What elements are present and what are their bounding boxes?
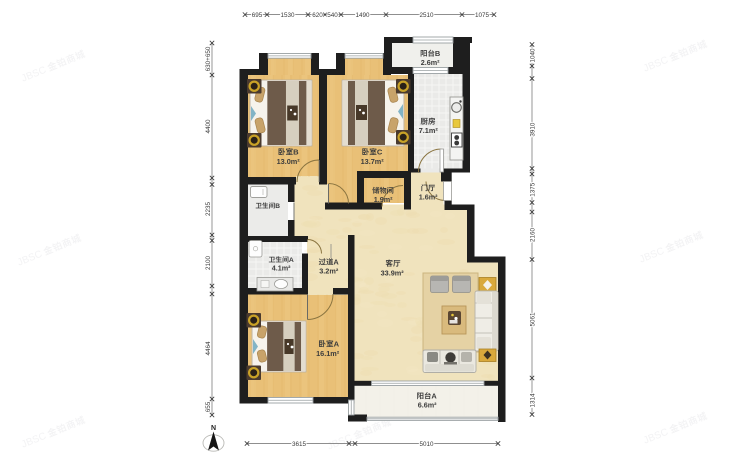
svg-text:5061: 5061 bbox=[530, 312, 537, 327]
svg-text:655: 655 bbox=[205, 401, 212, 412]
svg-text:2160: 2160 bbox=[530, 228, 537, 243]
svg-text:4.1m²: 4.1m² bbox=[272, 264, 291, 273]
svg-text:13.0m²: 13.0m² bbox=[277, 157, 301, 166]
svg-text:B: B bbox=[435, 49, 440, 58]
svg-text:B: B bbox=[293, 148, 299, 157]
svg-text:2235: 2235 bbox=[205, 202, 212, 217]
svg-text:C: C bbox=[377, 148, 383, 157]
svg-text:16.1m²: 16.1m² bbox=[316, 349, 340, 358]
svg-text:A: A bbox=[333, 258, 339, 267]
svg-text:630+650: 630+650 bbox=[205, 46, 212, 71]
svg-text:A: A bbox=[334, 340, 340, 349]
svg-text:7.1m²: 7.1m² bbox=[419, 126, 439, 135]
svg-text:1075: 1075 bbox=[475, 12, 490, 19]
svg-text:6.6m²: 6.6m² bbox=[418, 401, 437, 410]
svg-text:13.7m²: 13.7m² bbox=[361, 157, 385, 166]
svg-text:2510: 2510 bbox=[419, 12, 434, 19]
svg-text:1.9m²: 1.9m² bbox=[374, 195, 393, 204]
svg-text:4400: 4400 bbox=[205, 119, 212, 134]
svg-text:1375: 1375 bbox=[530, 182, 537, 197]
svg-text:5010: 5010 bbox=[419, 441, 434, 448]
svg-text:695: 695 bbox=[252, 12, 263, 19]
svg-text:620: 620 bbox=[312, 12, 323, 19]
svg-text:2.6m²: 2.6m² bbox=[421, 58, 440, 67]
svg-text:1490: 1490 bbox=[355, 12, 370, 19]
svg-text:1314: 1314 bbox=[530, 393, 537, 408]
svg-text:A: A bbox=[431, 392, 437, 401]
svg-text:2100: 2100 bbox=[205, 256, 212, 271]
svg-text:1530: 1530 bbox=[280, 12, 295, 19]
svg-text:33.9m²: 33.9m² bbox=[381, 269, 405, 278]
svg-text:3615: 3615 bbox=[292, 441, 307, 448]
svg-text:3.2m²: 3.2m² bbox=[319, 267, 339, 276]
svg-text:B: B bbox=[275, 203, 280, 210]
svg-text:1.6m²: 1.6m² bbox=[419, 193, 438, 202]
svg-text:540: 540 bbox=[327, 12, 338, 19]
svg-text:1040: 1040 bbox=[530, 48, 537, 63]
svg-text:N: N bbox=[211, 425, 216, 432]
svg-text:3910: 3910 bbox=[530, 122, 537, 137]
svg-text:4464: 4464 bbox=[205, 341, 212, 356]
